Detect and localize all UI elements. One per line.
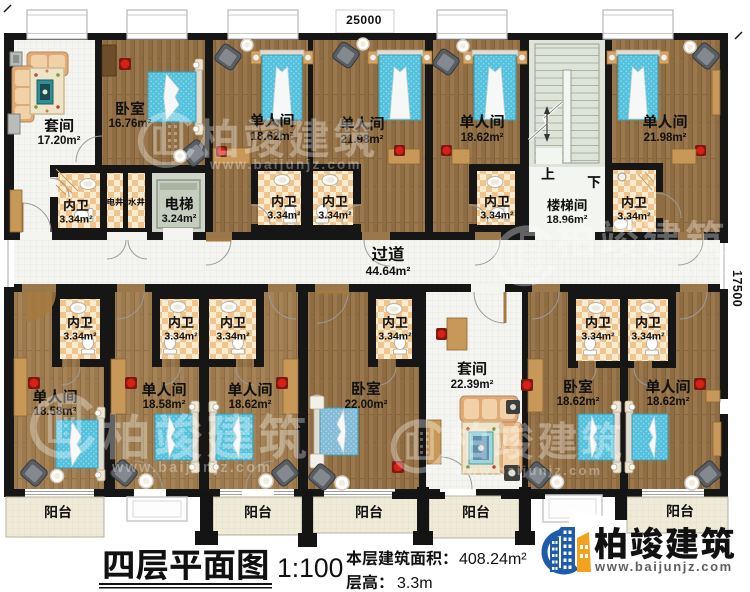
svg-text:18.62m²: 18.62m² — [557, 396, 600, 408]
svg-text:18.58m²: 18.58m² — [143, 399, 186, 411]
svg-text:www.baijunjz.com: www.baijunjz.com — [594, 559, 733, 574]
svg-text:25000: 25000 — [346, 13, 382, 27]
svg-text:3.24m²: 3.24m² — [162, 213, 197, 225]
svg-text:3.34m²: 3.34m² — [581, 331, 615, 343]
svg-text:www.baijunjz.com: www.baijunjz.com — [111, 460, 272, 476]
svg-text:3.34m²: 3.34m² — [63, 331, 97, 343]
svg-text:3.34m²: 3.34m² — [267, 210, 301, 222]
svg-text:3.34m²: 3.34m² — [631, 331, 665, 343]
svg-text:3.34m²: 3.34m² — [164, 331, 198, 343]
svg-text:3.34m²: 3.34m² — [318, 210, 352, 222]
svg-text:408.24m²: 408.24m² — [459, 551, 527, 568]
svg-text:22.00m²: 22.00m² — [345, 399, 388, 411]
svg-text:17.20m²: 17.20m² — [38, 135, 81, 147]
svg-text:44.64m²: 44.64m² — [366, 264, 411, 278]
svg-text:3.3m: 3.3m — [397, 575, 433, 592]
svg-text:3.34m²: 3.34m² — [378, 331, 412, 343]
svg-text:3.34m²: 3.34m² — [216, 331, 250, 343]
svg-text:www.baijunjz.com: www.baijunjz.com — [599, 264, 747, 279]
svg-text:22.39m²: 22.39m² — [451, 379, 494, 391]
svg-text:21.98m²: 21.98m² — [644, 132, 687, 144]
svg-text:3.34m²: 3.34m² — [59, 214, 93, 226]
svg-text:18.62m²: 18.62m² — [229, 399, 272, 411]
svg-text:18.62m²: 18.62m² — [647, 396, 690, 408]
svg-text:1:100: 1:100 — [277, 553, 343, 583]
svg-text:www.baijunjz.com: www.baijunjz.com — [209, 157, 362, 172]
svg-text:18.62m²: 18.62m² — [461, 132, 504, 144]
svg-text:3.34m²: 3.34m² — [480, 210, 514, 222]
svg-text:www.baijunjz.com: www.baijunjz.com — [454, 463, 602, 478]
